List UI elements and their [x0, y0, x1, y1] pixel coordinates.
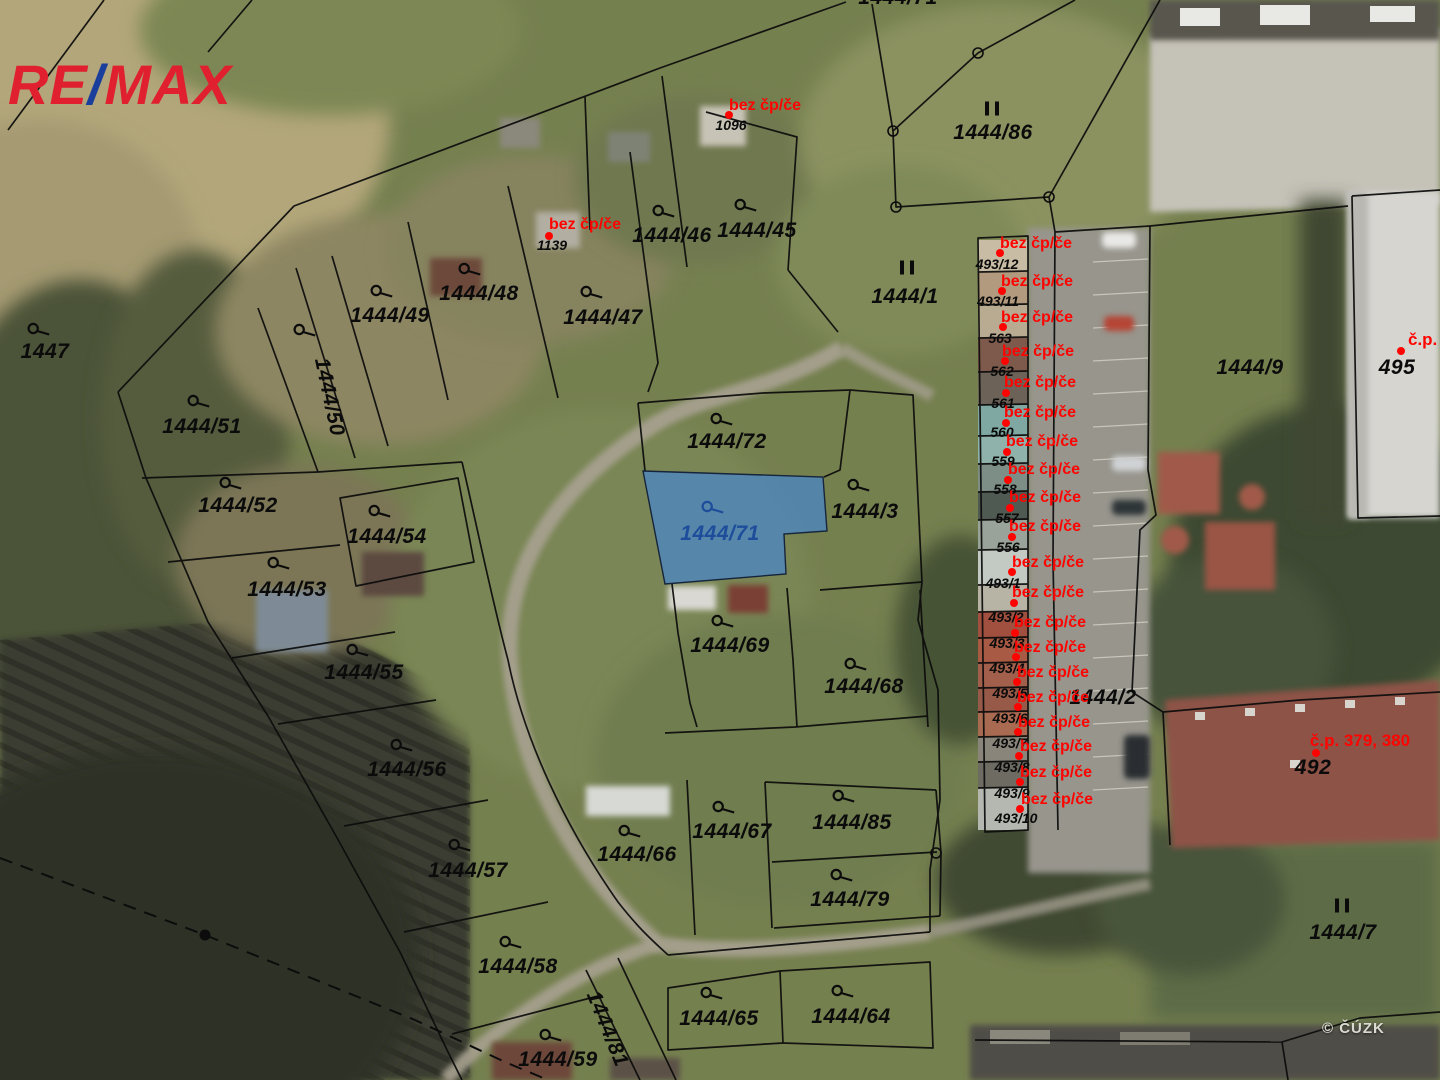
remax-logo: RE/MAX: [8, 52, 232, 117]
remax-logo-re: RE: [8, 53, 88, 116]
provider-watermark: © ČÚZK: [1322, 1020, 1385, 1037]
map-canvas[interactable]: [0, 0, 1440, 1080]
remax-logo-max: MAX: [104, 53, 231, 116]
boundary-point: [200, 930, 211, 941]
cadastral-map[interactable]: 1447 1444/51 1444/50 1444/52 1444/54 144…: [0, 0, 1440, 1080]
remax-logo-slash: /: [88, 53, 105, 116]
